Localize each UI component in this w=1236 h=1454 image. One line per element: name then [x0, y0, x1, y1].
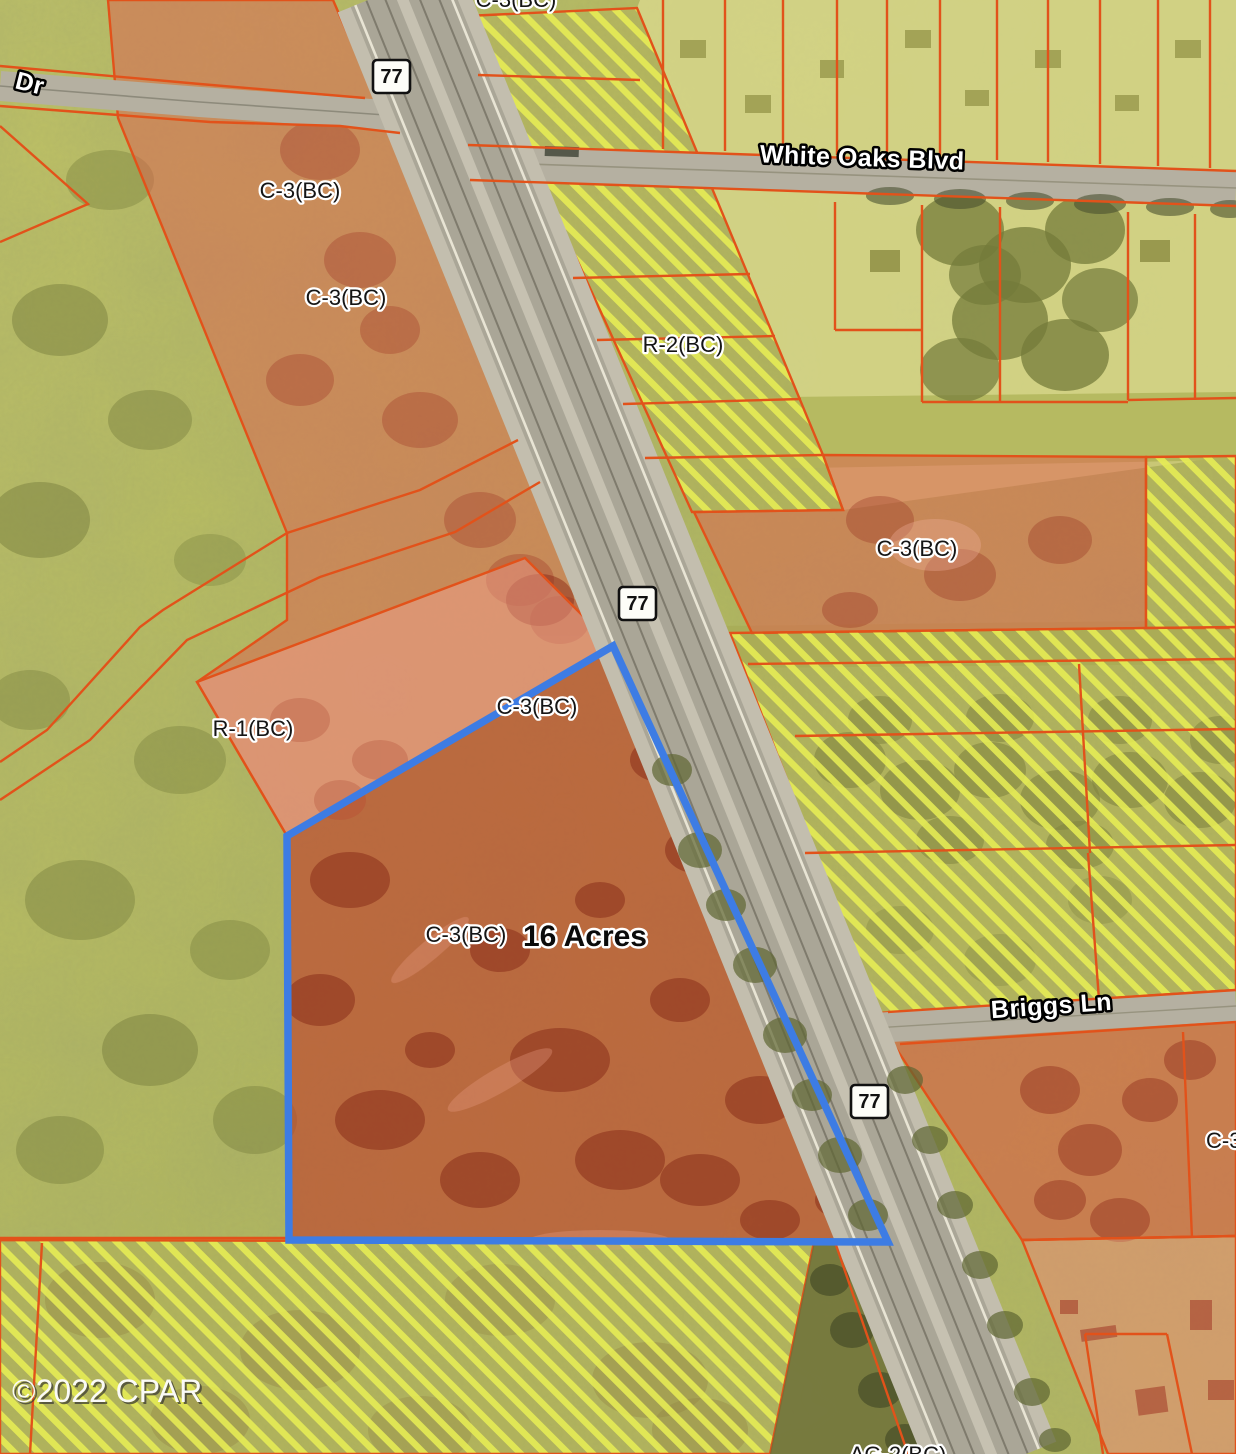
shield-number: 77 [626, 593, 648, 615]
zone-label-r2: R-2(BC) [643, 332, 724, 357]
zoning-map-image: 77 77 77 Dr White Oaks Blvd Briggs Ln C-… [0, 0, 1236, 1454]
shield-number: 77 [858, 1091, 880, 1113]
zone-label-c3-east: C-3(BC) [877, 536, 958, 561]
zone-label-c3-nw-1: C-3(BC) [260, 178, 341, 203]
zone-label-c3-nw-2: C-3(BC) [306, 285, 387, 310]
highway-77-shield-bottom: 77 [851, 1085, 888, 1118]
zoning-map-canvas: 77 77 77 Dr White Oaks Blvd Briggs Ln C-… [0, 0, 1236, 1454]
zone-label-c3-top-partial: C-3(BC) [476, 0, 557, 12]
zone-label-ag2-partial: AG-2(BC) [850, 1442, 947, 1454]
shield-number: 77 [380, 66, 402, 88]
attribution-text: ©2022 CPAR [12, 1373, 202, 1409]
hatched-bottom-left [0, 1240, 814, 1454]
highway-77-shield-top: 77 [373, 60, 410, 93]
zone-label-r1: R-1(BC) [213, 716, 294, 741]
attribution-watermark: ©2022 CPAR ©2022 CPAR [12, 1373, 204, 1411]
zone-label-c3-right-partial: C-3(BC) [1206, 1128, 1236, 1153]
highway-77-shield-middle: 77 [619, 587, 656, 620]
zone-label-c3-subject-top: C-3(BC) [497, 694, 578, 719]
zone-label-c3-subject: C-3(BC) [426, 922, 507, 947]
acreage-label: 16 Acres [523, 920, 647, 953]
hatched-right-strip [1146, 456, 1236, 628]
